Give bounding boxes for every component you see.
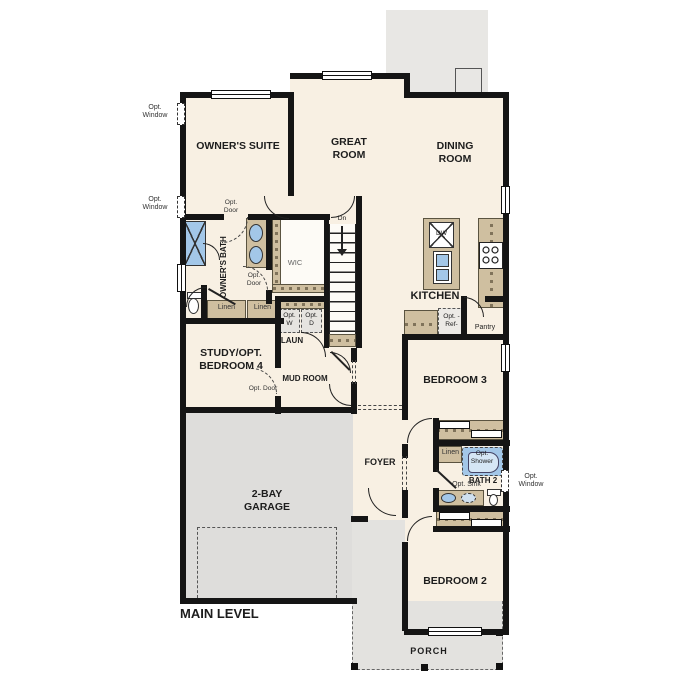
wic-label: WIC: [283, 258, 307, 267]
opt-door-label: Opt. Door: [248, 385, 278, 393]
opt-window-marker: [501, 470, 509, 492]
sink: [249, 224, 263, 242]
great-room-label: GREAT ROOM: [318, 136, 380, 161]
wall: [404, 92, 509, 98]
wic-wall: [272, 218, 281, 292]
owners-bath-label: OWNER'S BATH: [219, 234, 235, 300]
stairs-dn-label: Dn: [333, 215, 351, 223]
wic-wall: [272, 284, 325, 293]
stove-burners: [480, 243, 502, 267]
opt-ref-label: Opt. -Ref-: [439, 313, 464, 329]
opt-window-marker: [177, 196, 185, 218]
linen-label: Linen: [209, 304, 244, 312]
porch-post: [351, 663, 358, 670]
kitchen-label: KITCHEN: [400, 290, 470, 303]
porch-label: PORCH: [404, 646, 454, 657]
floor-plan: OWNER'S SUITE GREAT ROOM DINING ROOM KIT…: [0, 0, 687, 687]
garage-label: 2-BAY GARAGE: [232, 488, 302, 513]
wall: [180, 407, 357, 413]
wall: [404, 334, 505, 340]
opt-window-marker: [177, 103, 185, 125]
wall: [275, 296, 327, 302]
wall: [248, 214, 330, 220]
wall: [266, 214, 272, 270]
opt-dryer-label: Opt. D: [302, 312, 321, 328]
opt-window-label: Opt. Window: [136, 196, 174, 213]
sink-basin: [436, 269, 449, 281]
cased-opening: [352, 360, 356, 384]
bedroom2-label: BEDROOM 2: [415, 575, 495, 588]
linen-label: Linen: [439, 449, 462, 457]
stairs-arrow: [341, 226, 343, 250]
porch-post: [496, 663, 503, 670]
window: [501, 344, 510, 372]
wall: [485, 296, 505, 302]
walkway-floor: [352, 520, 405, 604]
window: [177, 264, 186, 292]
sink: [249, 246, 263, 264]
wall: [324, 214, 329, 348]
laundry-label: LAUN: [275, 336, 309, 346]
study-label: STUDY/OPT. BEDROOM 4: [175, 347, 287, 372]
opt-washer-label: Opt. W: [280, 312, 299, 328]
wall: [402, 542, 408, 631]
window: [501, 186, 510, 214]
wall: [433, 418, 439, 472]
opt-window-label: Opt. Window: [136, 104, 174, 121]
stairs-arrow-head: [337, 249, 347, 256]
dw-label: DW: [429, 230, 454, 238]
sink: [441, 493, 456, 503]
wall: [402, 490, 408, 518]
wall: [288, 92, 294, 196]
stove: [479, 242, 503, 269]
opt-door-label: Opt. Door: [240, 272, 268, 288]
understair-band: [329, 334, 356, 347]
wall: [180, 598, 357, 604]
closet-slider: [439, 512, 470, 520]
opt-window-label: Opt. Window: [512, 473, 550, 490]
wall: [402, 334, 408, 420]
closet-slider: [471, 430, 502, 438]
wall: [180, 318, 284, 324]
main-level-label: MAIN LEVEL: [180, 606, 290, 622]
toilet-bowl: [489, 494, 498, 506]
opt-sink-dashed: [461, 493, 476, 503]
opt-sink-label: Opt. Sink: [448, 481, 485, 489]
dining-room-label: DINING ROOM: [424, 140, 486, 165]
sink-basin: [436, 254, 449, 267]
opt-shower-label: Opt. Shower: [466, 450, 498, 466]
garage-door-bay: [197, 527, 337, 598]
linen-label: Linen: [248, 304, 277, 312]
opt-door-label: Opt. Door: [217, 199, 245, 215]
wall: [266, 290, 272, 304]
wall: [433, 526, 510, 532]
owners-suite-label: OWNER'S SUITE: [192, 140, 284, 153]
pantry-label: Pantry: [468, 324, 502, 332]
wall: [351, 516, 368, 522]
wall: [180, 214, 224, 220]
porch-post: [421, 664, 428, 671]
window: [322, 71, 372, 80]
wall: [180, 412, 186, 604]
wall: [503, 92, 509, 342]
foyer-label: FOYER: [357, 457, 403, 468]
closet-slider: [439, 421, 470, 429]
window: [211, 90, 271, 99]
window: [428, 627, 482, 636]
bedroom3-label: BEDROOM 3: [415, 374, 495, 387]
wall: [433, 506, 510, 512]
cased-opening: [358, 405, 402, 410]
wall: [356, 196, 362, 348]
wic-floor: [280, 220, 325, 284]
wall: [433, 440, 510, 446]
mud-room-label: MUD ROOM: [281, 374, 329, 384]
